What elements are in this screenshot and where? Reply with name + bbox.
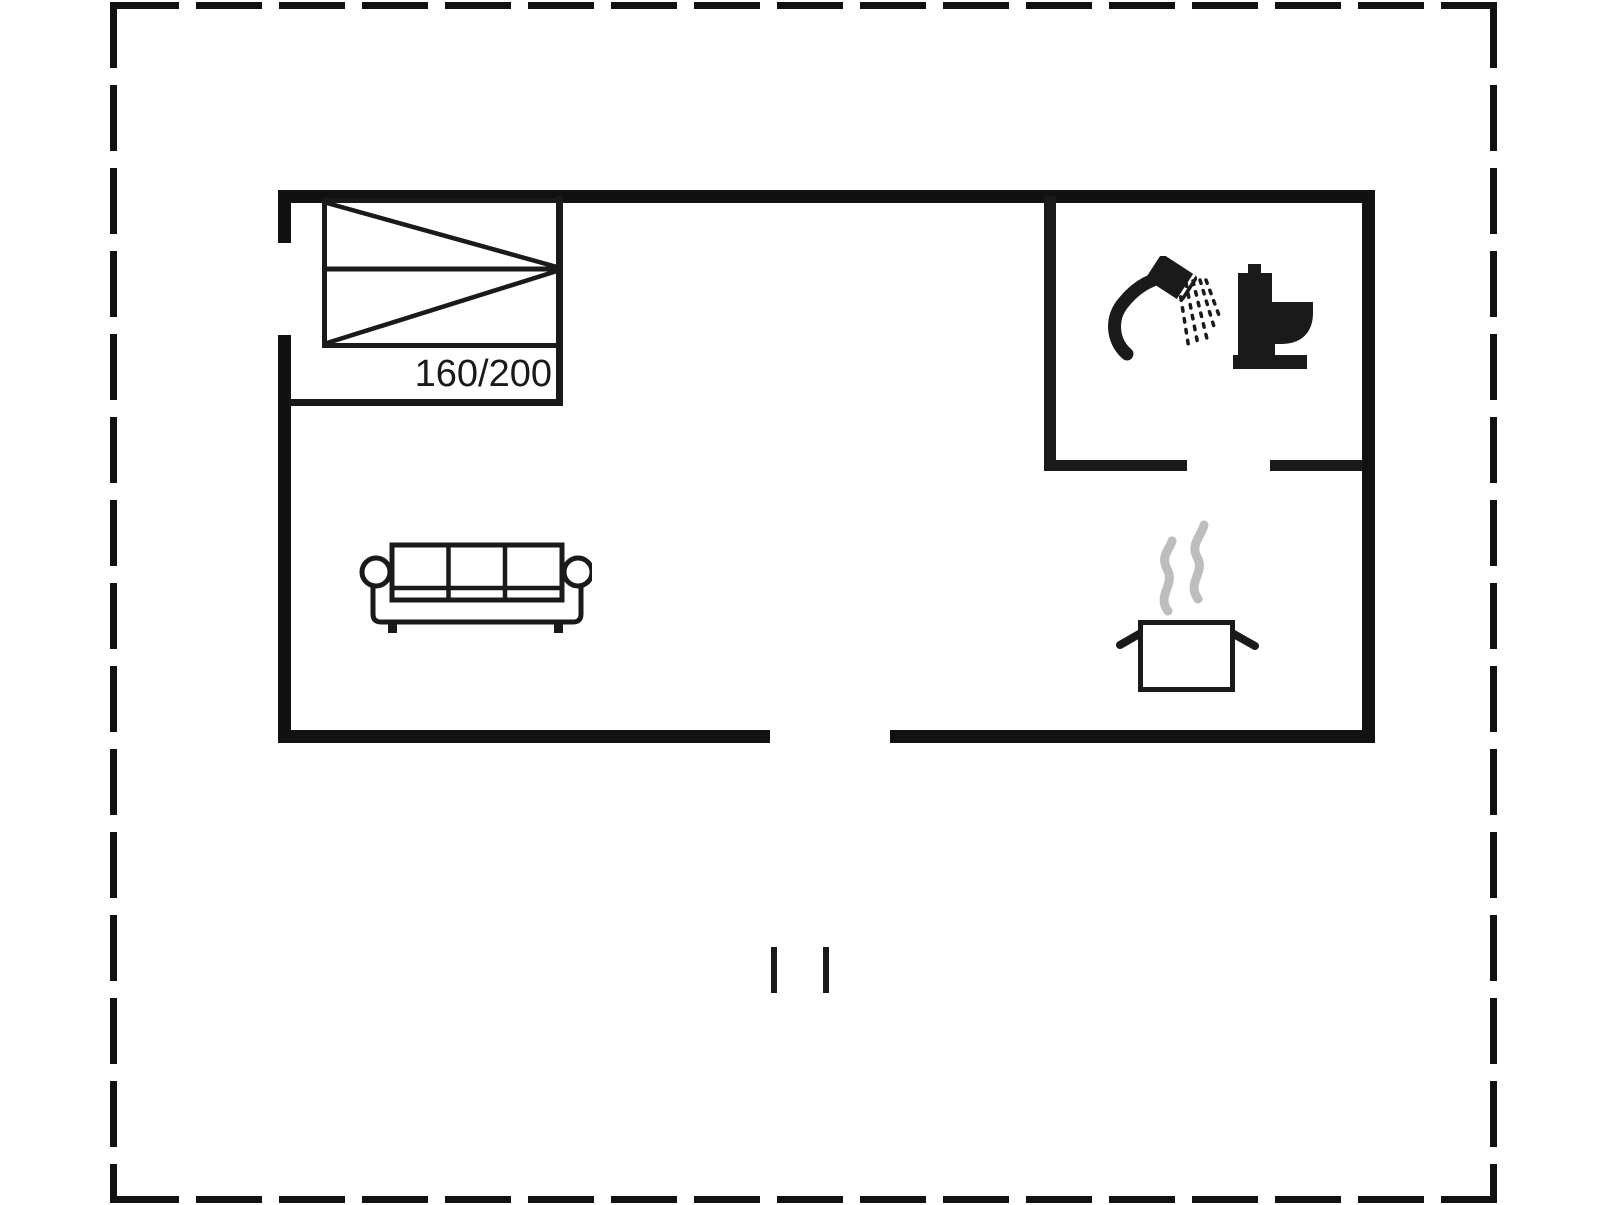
wall-bottom-left xyxy=(278,730,770,743)
bed-size-label: 160/200 xyxy=(330,354,552,394)
entrance-mark-right xyxy=(823,947,829,993)
bathroom-wall-bottom-left xyxy=(1044,460,1187,471)
wall-left-lower xyxy=(278,335,291,743)
wall-left-upper xyxy=(278,190,291,243)
toilet-icon xyxy=(1205,258,1315,372)
wall-right xyxy=(1362,190,1375,743)
plot-border-left xyxy=(110,2,117,1203)
wall-bottom-right xyxy=(890,730,1375,743)
steaming-pot-icon xyxy=(1108,515,1263,700)
steam-wisps xyxy=(1164,525,1204,611)
bathroom-wall-vertical xyxy=(1044,196,1056,471)
floorplan-canvas: 160/200 xyxy=(0,0,1606,1205)
double-bed-icon xyxy=(322,198,562,348)
bathroom-wall-bottom-right xyxy=(1270,460,1362,471)
plot-border-top xyxy=(113,2,1497,9)
plot-border-right xyxy=(1490,2,1497,1203)
entrance-mark-left xyxy=(771,947,777,993)
plot-border-bottom xyxy=(113,1196,1497,1203)
bed-niche-wall-horizontal xyxy=(289,399,563,406)
sofa-icon xyxy=(352,530,592,635)
